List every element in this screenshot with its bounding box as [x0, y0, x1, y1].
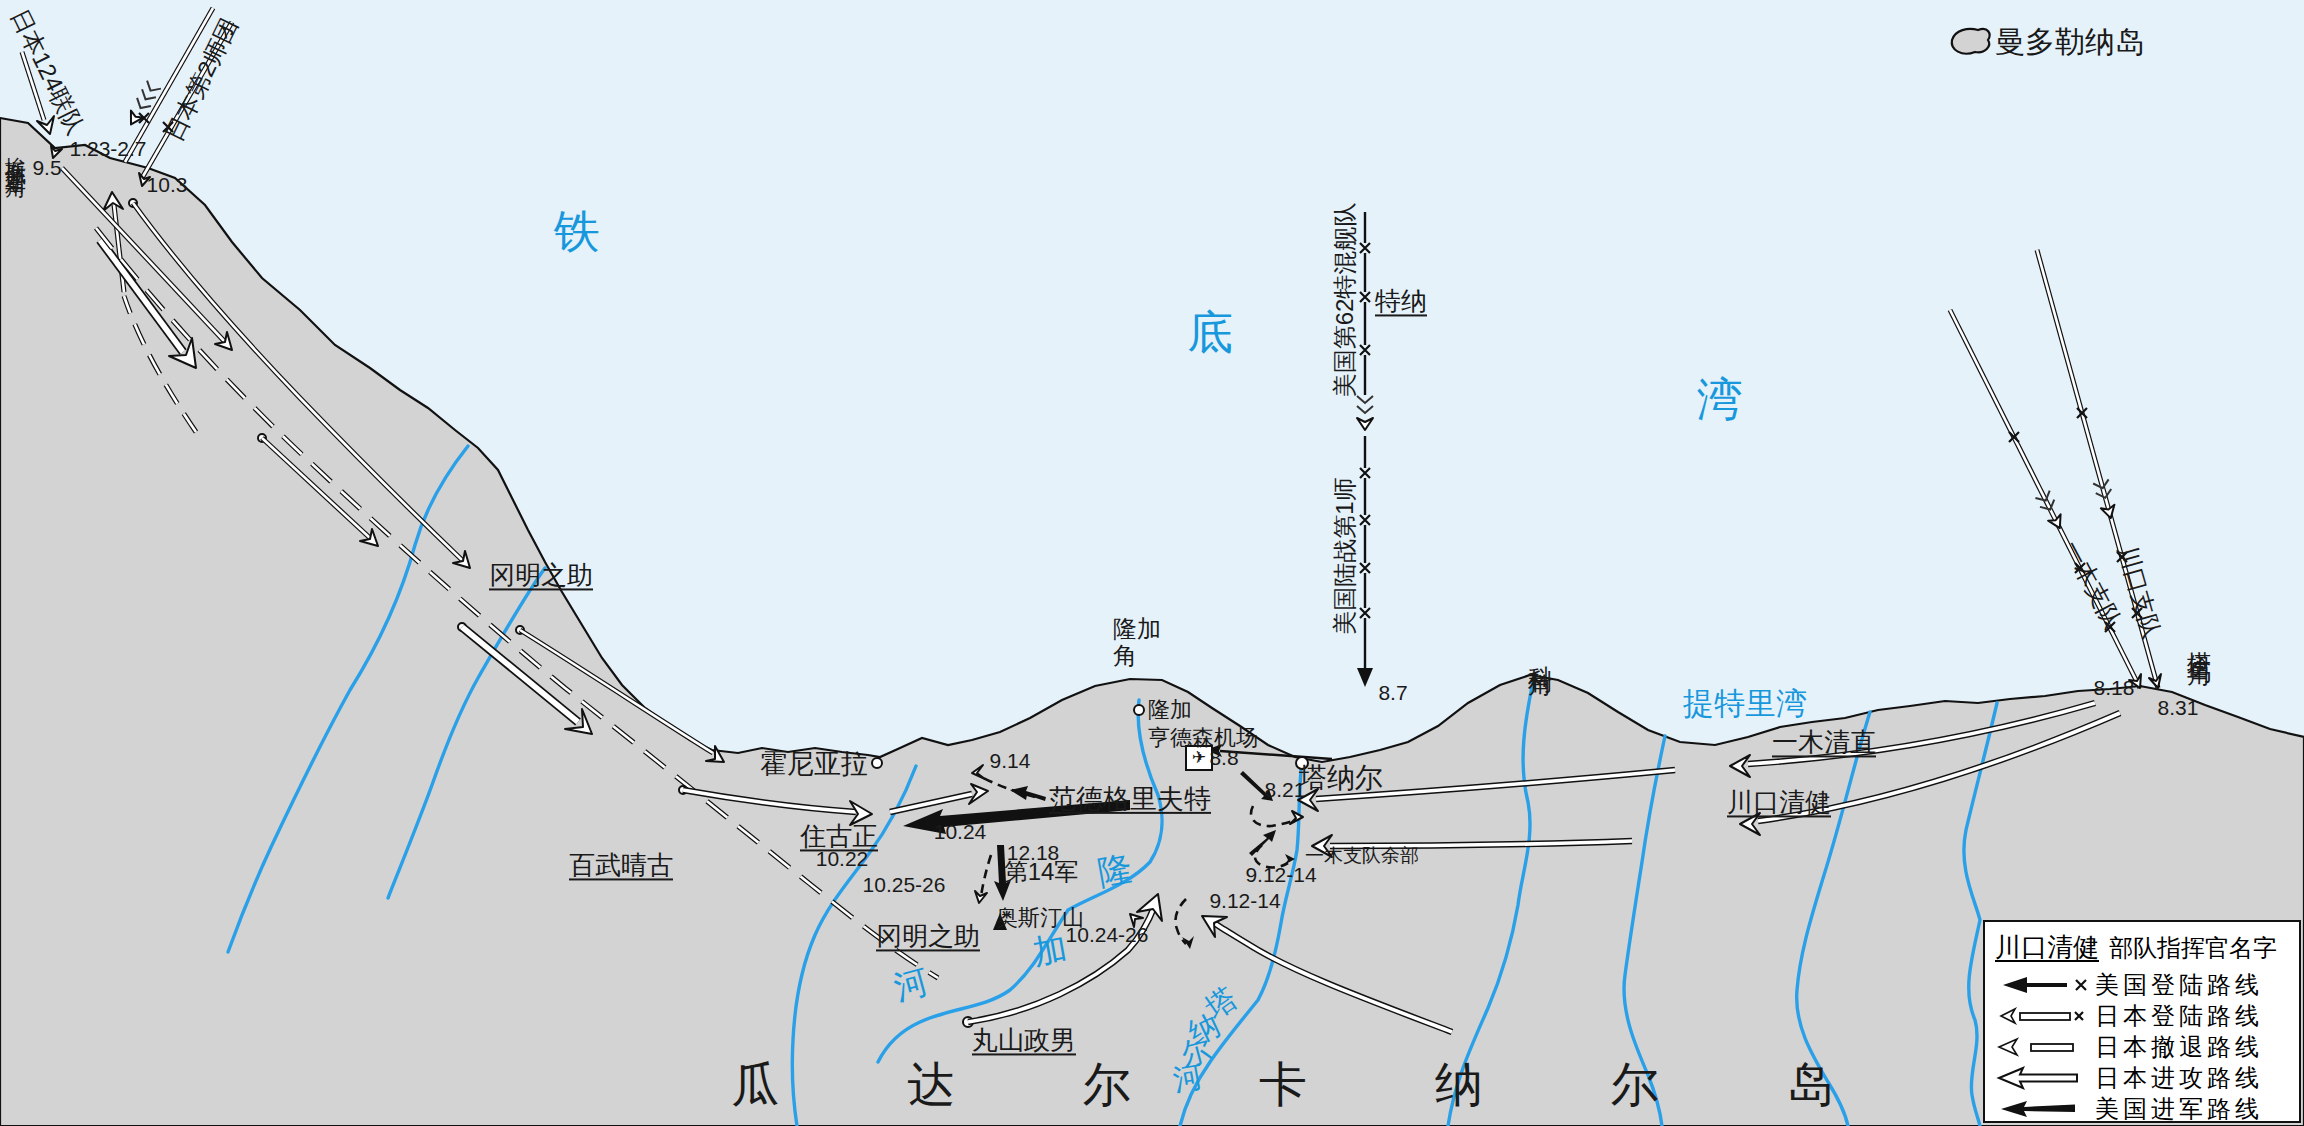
legend-label: 日本登陆路线: [2095, 1000, 2263, 1032]
jp-landing-route-symbol: [1995, 1005, 2095, 1027]
legend-row-jp-attack: 日本进攻路线: [1995, 1062, 2293, 1093]
legend-label: 日本撤退路线: [2095, 1031, 2263, 1063]
tenaru-town-marker: [1296, 757, 1308, 769]
jp-attack-route-symbol: [1995, 1066, 2095, 1090]
legend-commander-row: 川口清健 部队指挥官名字: [1995, 930, 2293, 965]
us-advance-route-symbol: [1995, 1098, 2095, 1120]
lunga-town-marker: [1134, 705, 1144, 715]
legend-row-us-landing: 美国登陆路线: [1995, 969, 2293, 1000]
honiara-town-marker: [872, 758, 882, 768]
legend-label: 美国登陆路线: [2095, 969, 2263, 1001]
legend-commander-example: 川口清健: [1995, 930, 2099, 965]
mandolena-island: [1952, 29, 1990, 54]
legend-row-us-advance: 美国进军路线: [1995, 1093, 2293, 1124]
henderson-airport-box: [1186, 746, 1212, 770]
legend-row-jp-landing: 日本登陆路线: [1995, 1000, 2293, 1031]
legend-label: 日本进攻路线: [2095, 1062, 2263, 1094]
guadalcanal-campaign-map: 曼多勒纳岛铁底湾提特里湾埃斯佩兰斯角日本124联队日本第2师团1.23-2.79…: [0, 0, 2304, 1126]
us-landing-route-symbol: [1995, 974, 2095, 996]
legend-label: 美国进军路线: [2095, 1093, 2263, 1125]
legend-commander-desc: 部队指挥官名字: [2109, 932, 2277, 964]
map-legend: 川口清健 部队指挥官名字 美国登陆路线 日本登陆路线 日本撤退路线 日本进攻路线: [1983, 920, 2301, 1123]
legend-row-jp-retreat: 日本撤退路线: [1995, 1031, 2293, 1062]
map-canvas: [0, 0, 2304, 1126]
jp-retreat-route-symbol: [1995, 1036, 2095, 1058]
